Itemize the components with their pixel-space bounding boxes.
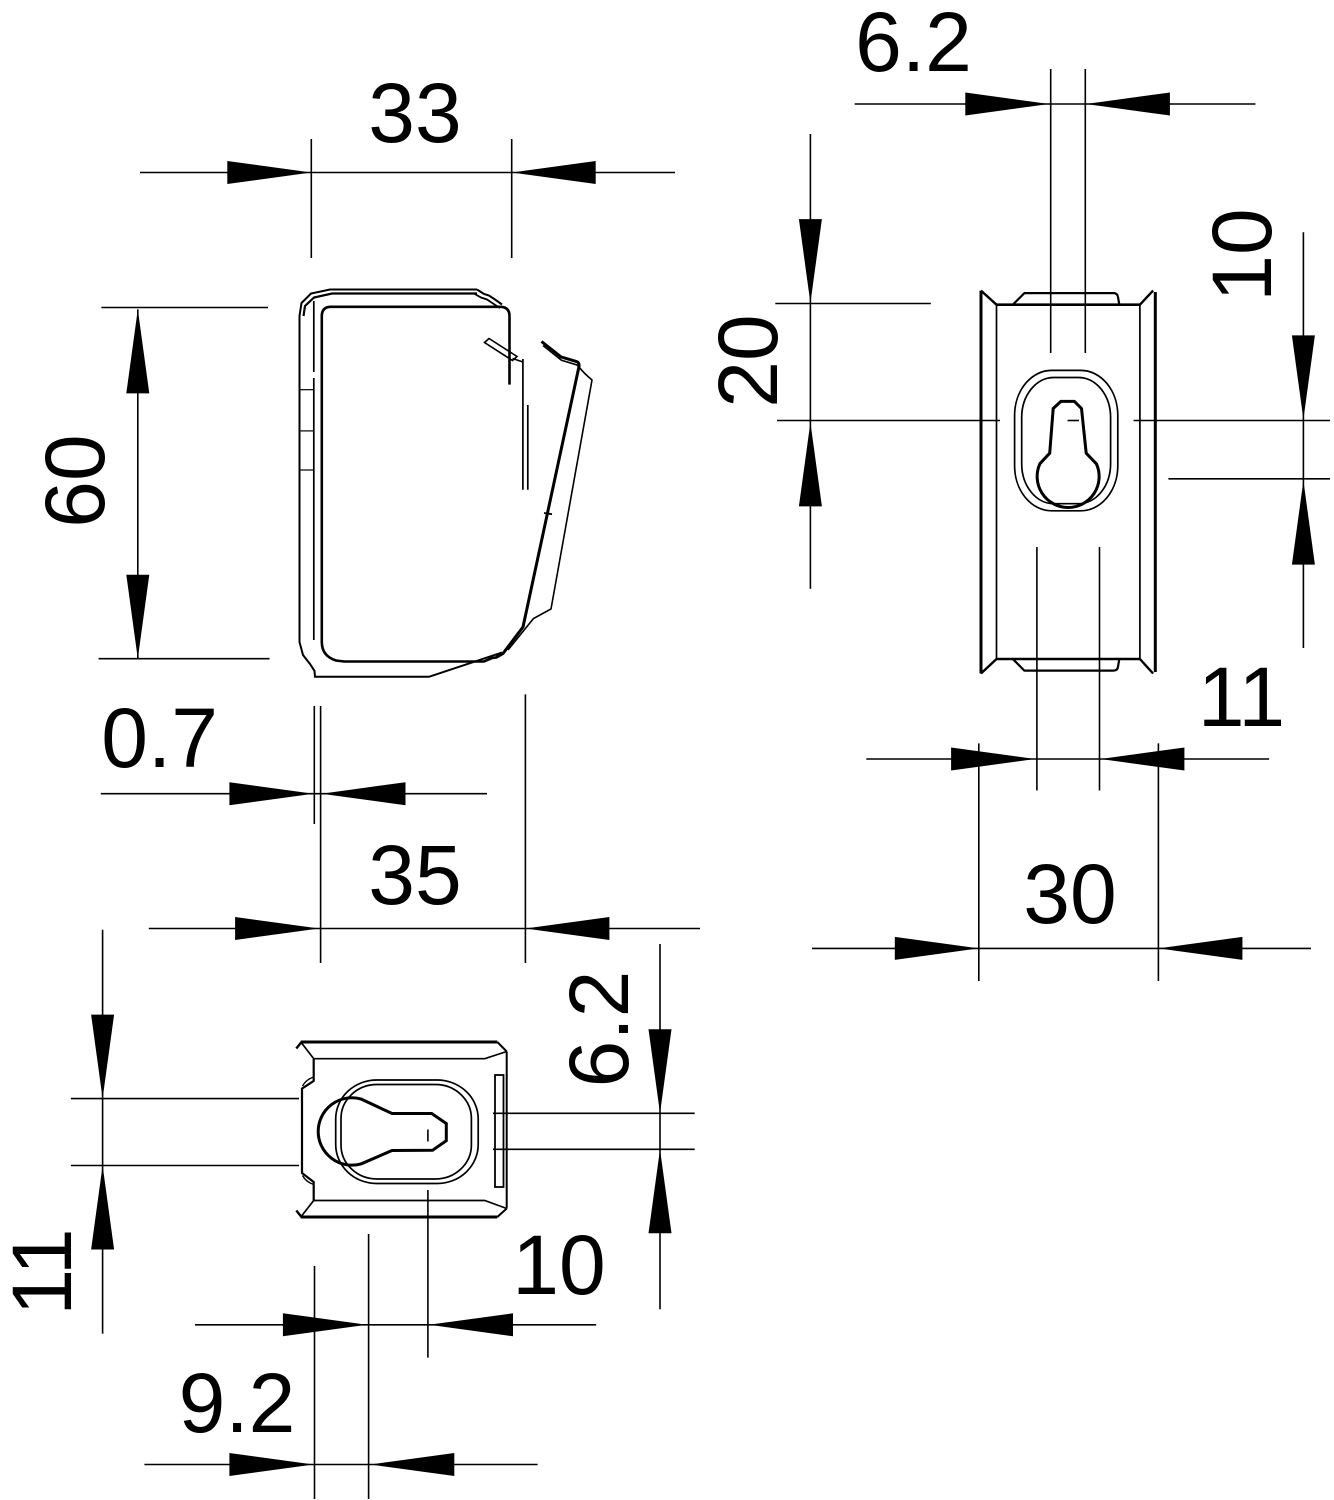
svg-text:60: 60 — [28, 434, 122, 527]
svg-text:35: 35 — [368, 828, 461, 922]
svg-text:6.2: 6.2 — [855, 0, 972, 89]
svg-text:11: 11 — [0, 1228, 89, 1315]
svg-text:10: 10 — [1195, 208, 1289, 301]
svg-text:10: 10 — [512, 1218, 605, 1312]
svg-text:0.7: 0.7 — [101, 691, 218, 785]
svg-text:20: 20 — [701, 314, 795, 407]
svg-text:6.2: 6.2 — [552, 971, 646, 1088]
svg-text:30: 30 — [1023, 847, 1116, 941]
svg-text:11: 11 — [1198, 650, 1285, 744]
svg-text:33: 33 — [368, 66, 461, 160]
svg-text:9.2: 9.2 — [179, 1356, 296, 1450]
